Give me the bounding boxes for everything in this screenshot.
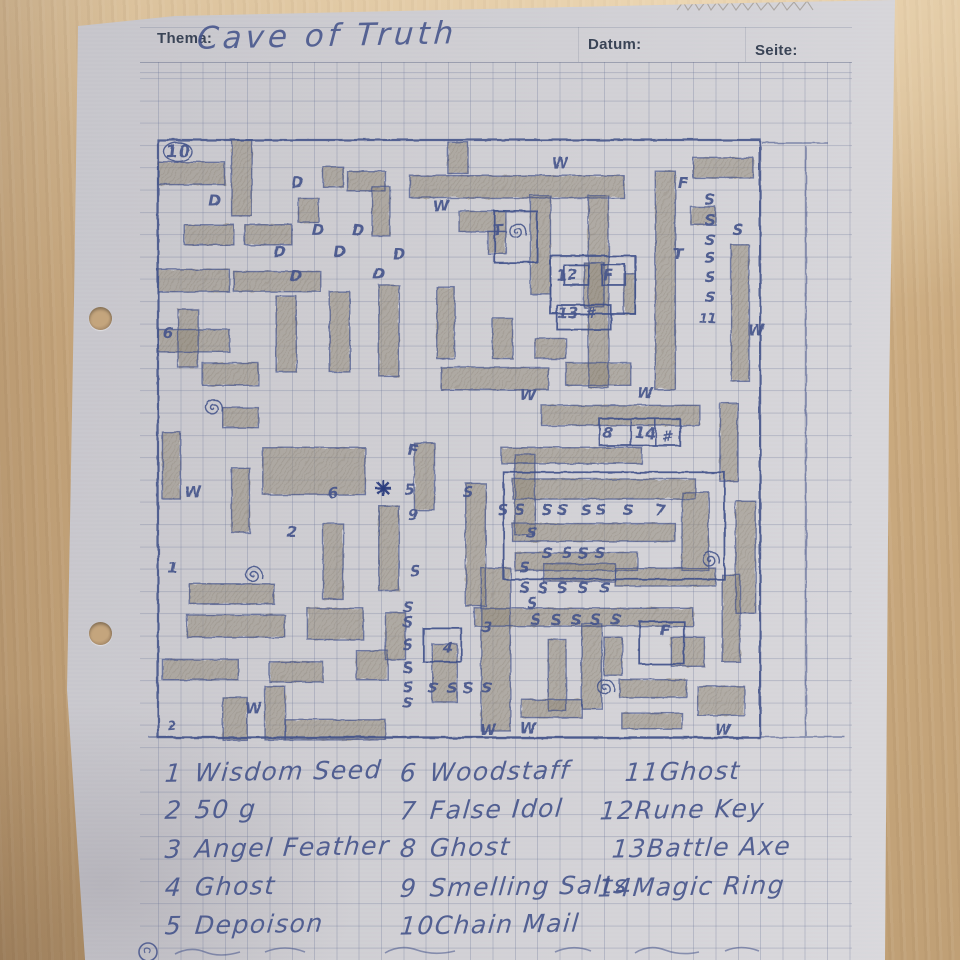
- map-label-W: W: [519, 719, 538, 738]
- legend-item-11: 11Ghost: [624, 756, 742, 787]
- map-wall-hatch: [372, 187, 390, 236]
- map-label-S: S: [402, 659, 413, 677]
- map-wall-hatch: [232, 140, 252, 216]
- legend-item-number: 13: [611, 834, 648, 864]
- legend-item-label: Depoison: [194, 909, 325, 940]
- legend-item-number: 5: [164, 911, 197, 941]
- map-label-11: 11: [699, 312, 718, 328]
- punch-hole-bottom: [89, 622, 112, 645]
- map-label-S: S: [556, 579, 568, 598]
- map-label-D: D: [311, 221, 324, 239]
- map-label-#: #: [585, 304, 597, 322]
- map-label-9: 9: [407, 506, 419, 525]
- map-label-S: S: [482, 679, 493, 697]
- legend-item-number: 6: [399, 758, 432, 788]
- legend-item-label: Ghost: [194, 871, 277, 901]
- legend-item-label: Rune Key: [634, 794, 767, 825]
- map-wall-hatch: [263, 448, 366, 495]
- map-label-S: S: [610, 611, 622, 630]
- map-label-S: S: [550, 611, 561, 629]
- photo-scene: Thema: Cave of Truth Datum: Seite:: [0, 0, 960, 960]
- legend-item-9: 9Smelling Salts: [399, 870, 630, 903]
- spiral-mark: [510, 224, 527, 238]
- map-label-S: S: [595, 501, 606, 519]
- map-wall-hatch: [566, 363, 631, 385]
- map-label-S: S: [519, 579, 530, 597]
- map-label-F: F: [603, 266, 615, 284]
- map-label-S: S: [557, 501, 569, 520]
- map-wall-hatch: [223, 698, 248, 740]
- map-label-S: S: [497, 501, 508, 519]
- map-label-S: S: [704, 191, 715, 209]
- map-label-12: 12: [556, 265, 578, 284]
- legend-item-14: 14Magic Ring: [597, 870, 787, 902]
- map-label-S: S: [623, 501, 634, 519]
- map-label-S: S: [541, 544, 552, 562]
- legend-item-number: 10: [399, 911, 436, 941]
- map-label-S: S: [537, 579, 549, 598]
- cutoff-bottom-line: [135, 938, 835, 960]
- map-label-F: F: [678, 174, 689, 192]
- map-label-2: 2: [167, 719, 176, 734]
- map-label-1: 1: [168, 559, 178, 577]
- map-label-F: F: [659, 621, 671, 640]
- legend-item-number: 14: [597, 873, 634, 903]
- map-wall-hatch: [307, 608, 363, 639]
- map-label-W: W: [184, 482, 203, 501]
- map-wall-hatch: [521, 700, 581, 718]
- map-wall-hatch: [622, 713, 682, 729]
- legend-item-label: Ghost: [429, 832, 512, 862]
- map-wall-hatch: [276, 296, 296, 372]
- map-label-S: S: [402, 636, 414, 655]
- legend-item-4: 4Ghost: [164, 871, 277, 902]
- datum-label: Datum:: [588, 36, 641, 53]
- scribble-stroke: [677, 1, 813, 10]
- legend-item-label: False Idol: [429, 794, 565, 825]
- map-label-S: S: [594, 544, 606, 563]
- map-label-S: S: [562, 544, 573, 562]
- header-divider-1: [578, 27, 579, 62]
- map-label-D: D: [291, 174, 304, 192]
- map-wall-hatch: [162, 660, 238, 680]
- legend-item-13: 13Battle Axe: [611, 831, 793, 863]
- map-label-S: S: [705, 211, 716, 229]
- legend-item-number: 2: [164, 795, 197, 825]
- map-wall-hatch: [722, 575, 740, 662]
- map-wall-hatch: [323, 524, 343, 600]
- map-label-S: S: [580, 501, 592, 520]
- map-wall-hatch: [448, 142, 468, 173]
- map-wall-hatch: [223, 408, 259, 428]
- map-wall-hatch: [270, 662, 324, 682]
- legend-item-label: Battle Axe: [646, 831, 793, 863]
- map-label-6: 6: [162, 324, 174, 343]
- map-wall-hatch: [189, 584, 274, 604]
- legend-item-number: 1: [164, 758, 197, 788]
- map-wall-hatch: [698, 686, 745, 715]
- legend-item-number: 9: [399, 873, 432, 903]
- legend-item-10: 10Chain Mail: [399, 908, 581, 940]
- legend-item-number: 12: [599, 796, 636, 826]
- map-label-14: 14: [634, 423, 656, 442]
- map-label-2: 2: [286, 523, 297, 541]
- page-title: Cave of Truth: [196, 15, 459, 57]
- map-label-D: D: [289, 267, 303, 286]
- legend-item-label: Angel Feather: [194, 831, 391, 863]
- map-wall-hatch: [203, 363, 259, 385]
- map-label-S: S: [577, 579, 588, 597]
- map-wall-hatch: [379, 506, 399, 591]
- legend-item-number: 3: [164, 834, 197, 864]
- map-wall-hatch: [185, 225, 234, 245]
- map-wall-hatch: [158, 269, 229, 291]
- circled-mark-inner: [144, 948, 150, 953]
- map-label-S: S: [732, 221, 743, 239]
- legend-item-2: 250 g: [164, 794, 258, 825]
- map-label-S: S: [541, 501, 552, 519]
- map-label-#: #: [661, 428, 674, 447]
- map-label-W: W: [480, 721, 498, 739]
- map-label-S: S: [402, 694, 413, 712]
- map-wall-hatch: [693, 158, 753, 178]
- map-label-S: S: [520, 559, 531, 577]
- legend-item-label: Magic Ring: [632, 870, 787, 902]
- legend-item-number: 11: [624, 757, 661, 787]
- map-label-D: D: [209, 192, 221, 210]
- map-label-S: S: [446, 679, 458, 698]
- map-label-D: D: [372, 265, 385, 283]
- map-label-5: 5: [404, 481, 415, 499]
- map-wall-hatch: [515, 454, 535, 534]
- legend-item-7: 7False Idol: [399, 794, 565, 826]
- pencil-scribble: [675, 0, 845, 14]
- paper: Thema: Cave of Truth Datum: Seite:: [55, 0, 895, 960]
- map-label-3: 3: [481, 618, 492, 636]
- legend-item-number: 8: [399, 833, 432, 863]
- map-label-W: W: [714, 720, 733, 739]
- map-label-S: S: [704, 268, 715, 286]
- map-wall-hatch: [356, 651, 387, 680]
- map-wall-hatch: [323, 167, 343, 187]
- map-wall-hatch: [535, 338, 566, 358]
- map-wall-hatch: [620, 680, 687, 698]
- map-label-S: S: [526, 524, 538, 543]
- map-wall-hatch: [542, 405, 700, 425]
- map-label-W: W: [636, 383, 655, 402]
- map-wall-hatch: [232, 468, 250, 533]
- spiral-mark: [206, 400, 223, 414]
- map-wall-hatch: [379, 285, 399, 376]
- cutoff-handwriting: [175, 948, 759, 956]
- map-wall-hatch: [158, 162, 225, 184]
- legend-item-label: Wisdom Seed: [194, 755, 384, 787]
- legend-item-8: 8Ghost: [399, 832, 512, 863]
- map-label-S: S: [427, 679, 439, 698]
- map-wall-hatch: [720, 403, 738, 481]
- seite-label: Seite:: [755, 42, 798, 59]
- legend-item-label: Chain Mail: [434, 908, 582, 940]
- map-label-T: T: [673, 245, 686, 263]
- map-label-4: 4: [441, 639, 454, 658]
- map-label-W: W: [244, 699, 263, 718]
- map-wall-hatch: [493, 318, 513, 358]
- map-wall-hatch: [513, 479, 696, 499]
- legend-item-3: 3Angel Feather: [164, 831, 391, 864]
- legend-item-1: 1Wisdom Seed: [164, 755, 384, 788]
- map-label-D: D: [351, 221, 365, 240]
- map-wall-hatch: [655, 171, 675, 390]
- map-wall-hatch: [187, 615, 285, 637]
- map-label-S: S: [590, 611, 601, 629]
- map-wall-hatch: [731, 245, 749, 381]
- map-label-7: 7: [654, 501, 666, 519]
- map-label-W: W: [748, 321, 766, 339]
- punch-hole-top: [89, 307, 112, 330]
- map-label-S: S: [462, 483, 473, 501]
- legend-item-6: 6Woodstaff: [399, 755, 572, 787]
- map-label-S: S: [705, 288, 716, 306]
- legend-item-label: 50 g: [194, 794, 258, 824]
- map-label-8: 8: [602, 424, 613, 442]
- map-label-W: W: [551, 154, 570, 173]
- map-label-13: 13: [557, 304, 578, 323]
- header-bottom-line: [140, 62, 852, 63]
- map-wall-hatch: [437, 287, 455, 358]
- map-wall-hatch: [234, 272, 321, 292]
- map-label-S: S: [515, 501, 526, 519]
- legend-item-label: Ghost: [659, 756, 742, 786]
- header-divider-2: [745, 27, 746, 62]
- spiral-mark: [246, 567, 263, 581]
- map-label-W: W: [519, 386, 538, 405]
- map-label-S: S: [409, 562, 421, 581]
- map-label-F: F: [407, 441, 419, 460]
- map-wall-hatch: [298, 198, 318, 223]
- map-label-D: D: [393, 245, 405, 263]
- map-label-S: S: [402, 613, 414, 632]
- map-label-W: W: [432, 196, 451, 215]
- map-label-S: S: [462, 679, 473, 697]
- map-wall-hatch: [162, 432, 180, 499]
- map-wall-hatch: [682, 492, 709, 570]
- map-label-6: 6: [327, 484, 339, 503]
- map-wall-hatch: [410, 176, 624, 198]
- map-wall-hatch: [265, 686, 285, 740]
- map-label-S: S: [530, 611, 542, 630]
- map-label-S: S: [704, 231, 716, 250]
- map-label-D: D: [273, 243, 287, 262]
- legend-item-number: 4: [164, 872, 197, 902]
- map-label-D: D: [333, 243, 346, 261]
- map-wall-hatch: [330, 292, 350, 372]
- map-label-S: S: [704, 249, 716, 268]
- map-wall-hatch: [671, 637, 704, 666]
- map-wall-hatch: [604, 637, 622, 675]
- map-label-S: S: [600, 579, 611, 597]
- legend-item-label: Woodstaff: [429, 755, 572, 786]
- legend-item-12: 12Rune Key: [599, 794, 766, 826]
- legend-item-5: 5Depoison: [164, 909, 325, 941]
- map-label-S: S: [577, 544, 588, 562]
- map-label-S: S: [571, 611, 582, 629]
- map-svg: 10DDDDDDDDDWWWWWWWWWWTTFFFFSSSSSSS116121…: [148, 130, 853, 750]
- circled-mark: [139, 943, 157, 960]
- legend-item-number: 7: [399, 796, 432, 826]
- map-wall-hatch: [582, 624, 602, 709]
